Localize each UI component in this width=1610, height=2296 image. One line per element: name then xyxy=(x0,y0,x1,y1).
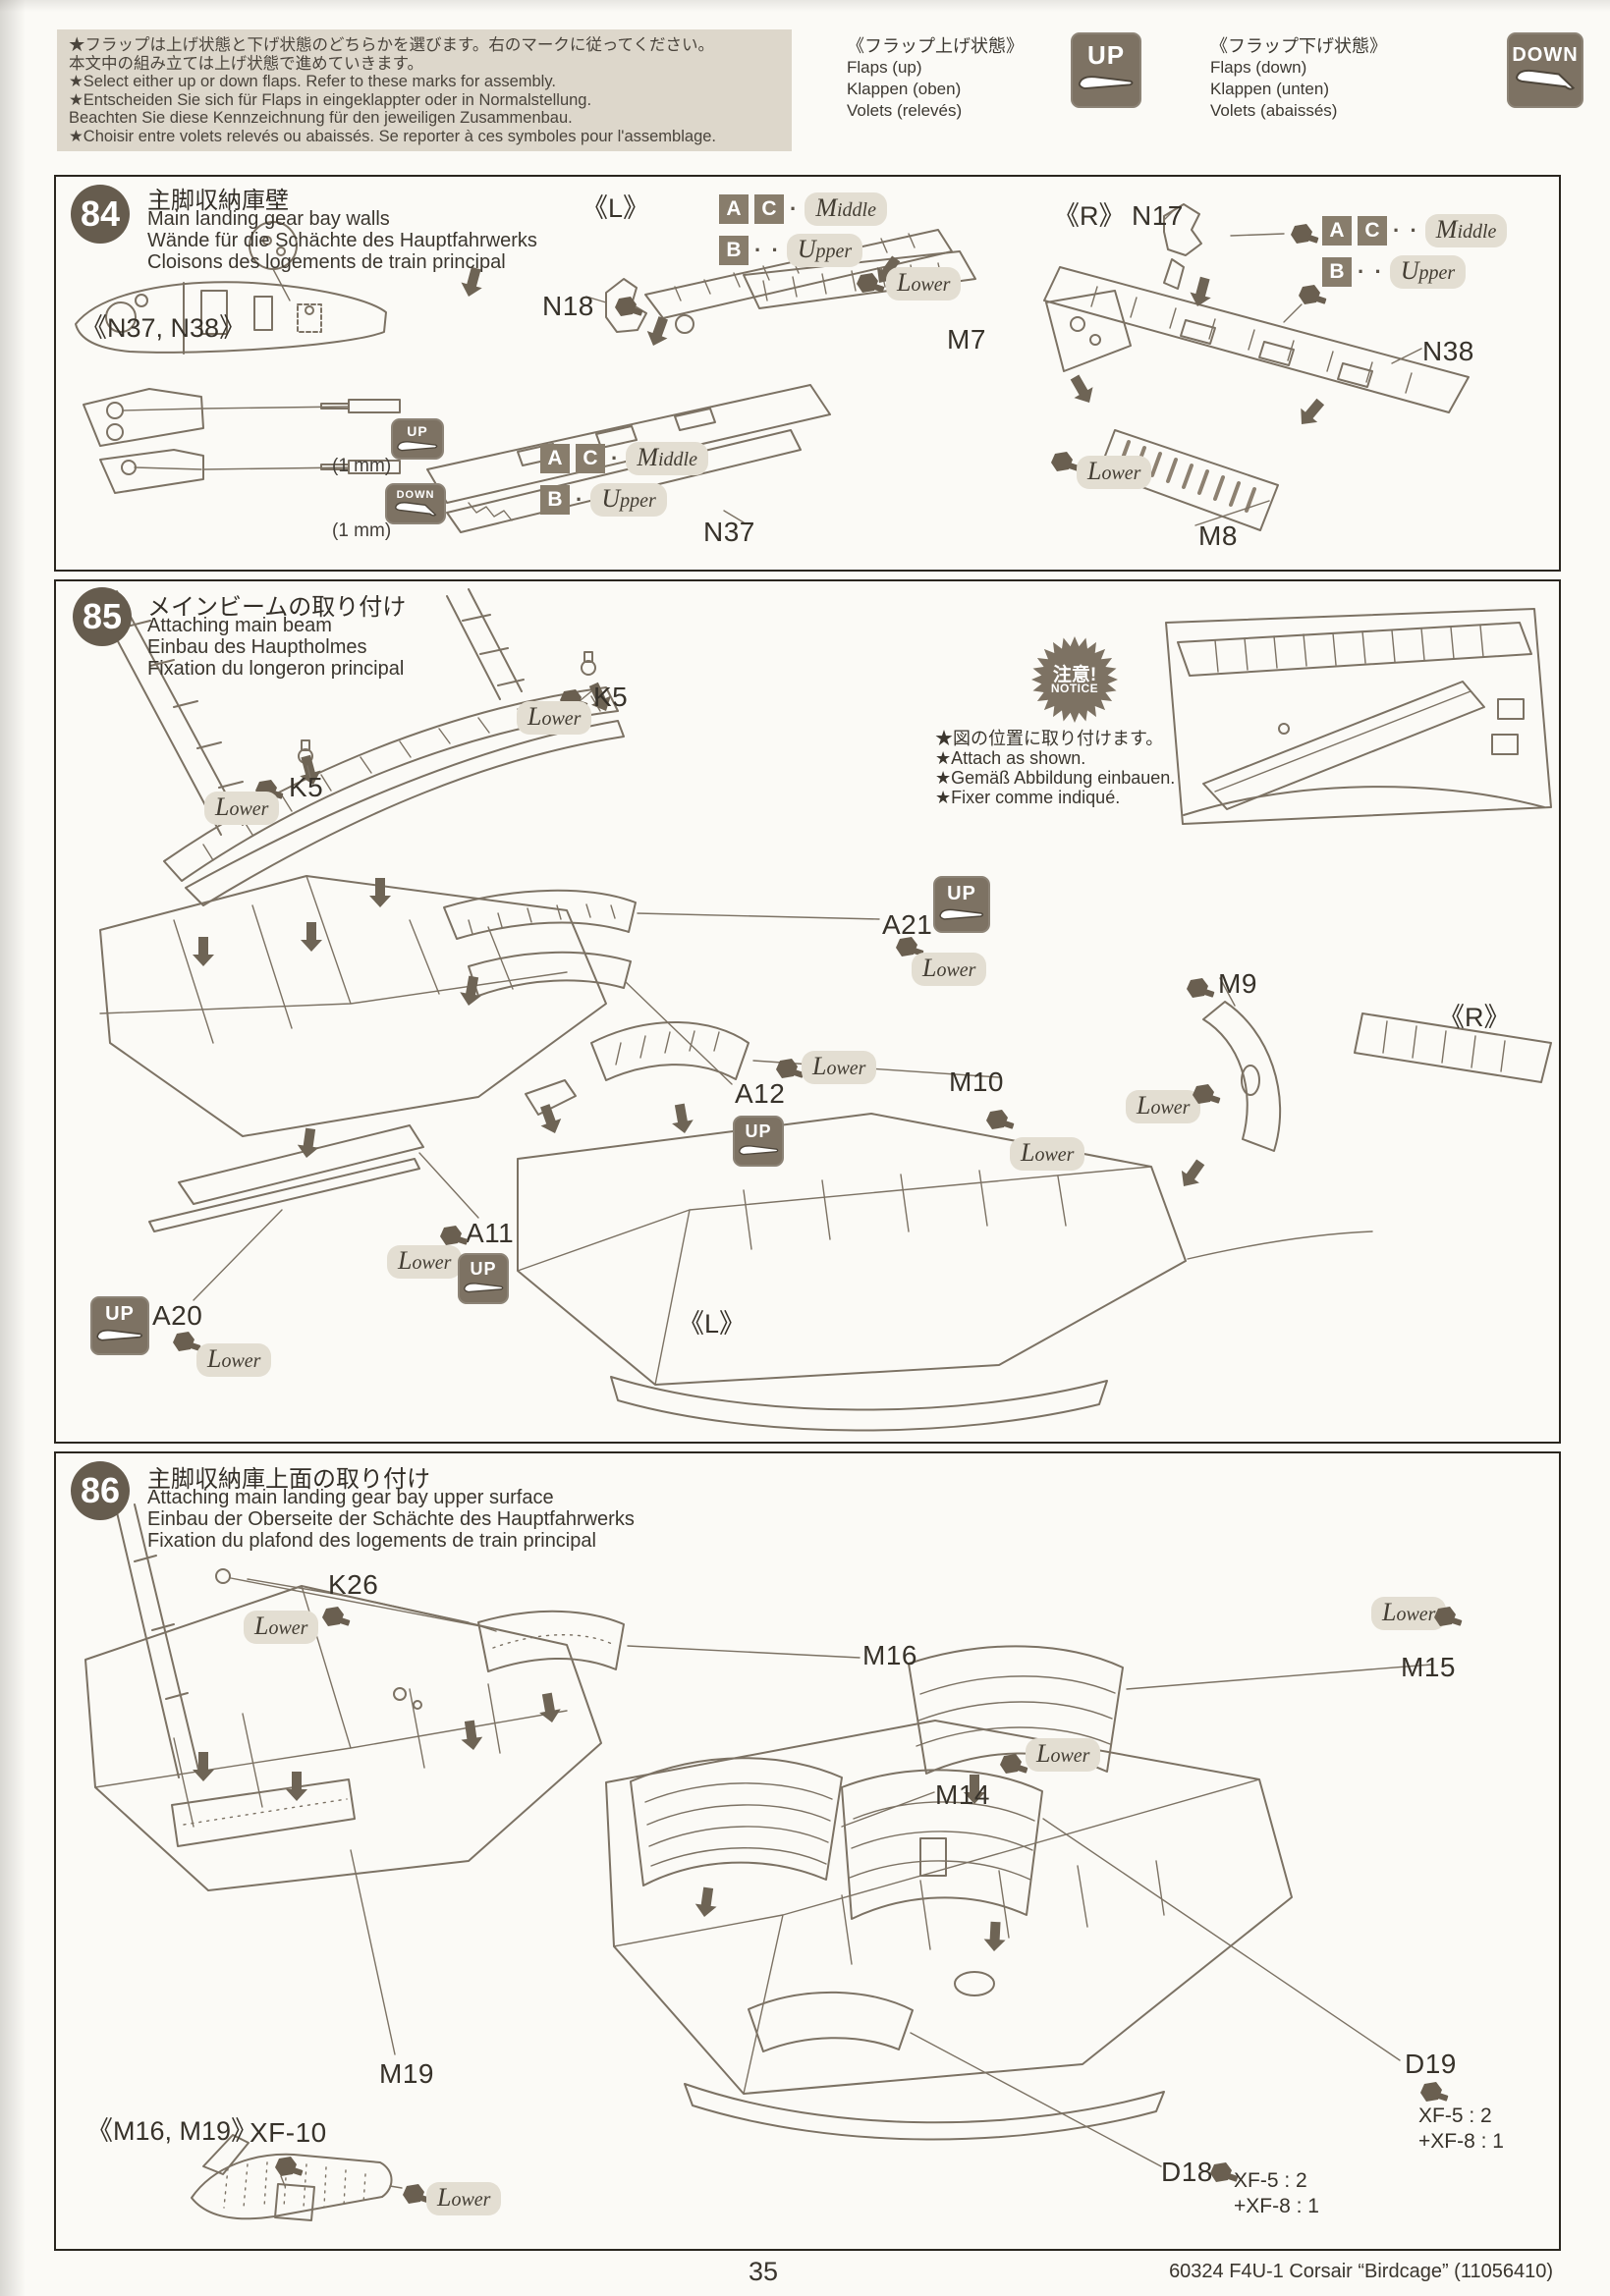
airfoil-icon xyxy=(395,438,440,455)
attach-code-row: AC·Middle xyxy=(540,442,708,475)
dots: · xyxy=(611,446,620,471)
paint-brush-icon xyxy=(982,1108,1016,1135)
attach-code-row: B·Upper xyxy=(540,483,667,517)
airfoil-icon xyxy=(94,1324,145,1347)
part-label: A11 xyxy=(466,1218,514,1249)
note-label: (1 mm) xyxy=(332,520,391,542)
part-label: M9 xyxy=(1218,968,1257,1000)
surface-pill: Lower xyxy=(196,1343,271,1377)
group-label: 《R》 xyxy=(1053,194,1126,233)
part-tree-letter: C xyxy=(576,444,605,473)
part-label: M10 xyxy=(949,1066,1004,1098)
badge-label: UP xyxy=(745,1122,771,1140)
surface-pill: Lower xyxy=(886,267,961,301)
part-label: K5 xyxy=(593,682,628,713)
paint-brush-icon xyxy=(611,295,644,322)
attach-code-row: B· ·Upper xyxy=(1322,255,1466,289)
surface-pill: Middle xyxy=(805,192,887,226)
paint-brush-icon xyxy=(1047,450,1081,477)
surface-pill: Lower xyxy=(1010,1137,1084,1171)
paint-brush-icon xyxy=(271,2155,305,2182)
paint-brush-icon xyxy=(318,1605,352,1632)
surface-pill: Lower xyxy=(387,1245,462,1279)
badge-label: UP xyxy=(470,1260,496,1278)
flap-up-badge: UP xyxy=(733,1116,784,1167)
airfoil-icon xyxy=(390,501,442,518)
flap-up-badge: UP xyxy=(458,1253,509,1304)
surface-pill: Lower xyxy=(426,2182,501,2215)
part-tree-letter: C xyxy=(754,194,784,224)
paint-brush-icon xyxy=(996,1752,1029,1779)
part-tree-letter: B xyxy=(540,485,570,515)
note-label: (1 mm) xyxy=(332,456,391,477)
badge-label: DOWN xyxy=(397,490,435,501)
part-label: XF-10 xyxy=(250,2117,327,2149)
paint-brush-icon xyxy=(1183,976,1216,1004)
surface-pill: Upper xyxy=(590,483,666,517)
dots: · xyxy=(576,487,584,513)
surface-pill: Lower xyxy=(1026,1738,1100,1772)
part-tree-letter: B xyxy=(719,236,749,265)
part-tree-letter: A xyxy=(719,194,749,224)
part-label: M14 xyxy=(935,1779,990,1811)
part-label: K5 xyxy=(289,772,323,803)
instruction-page: ★フラップは上げ状態と下げ状態のどちらかを選びます。右のマークに従ってください。… xyxy=(0,0,1610,2296)
part-label: A20 xyxy=(152,1300,202,1332)
paint-brush-icon xyxy=(1295,283,1328,310)
flap-up-badge: UP xyxy=(933,876,990,933)
paint-brush-icon xyxy=(1189,1082,1222,1110)
annotation-layer: 《L》AC·MiddleB· ·UpperN18LowerM7AC·Middle… xyxy=(0,0,1610,2296)
group-label: 《L》 xyxy=(582,187,649,225)
part-label: K26 xyxy=(328,1569,378,1601)
surface-pill: Middle xyxy=(626,442,708,475)
surface-pill: Lower xyxy=(912,953,986,986)
paint-mix-line: +XF-8 : 1 xyxy=(1234,2194,1319,2219)
flap-down-badge: DOWN xyxy=(385,483,446,524)
part-label: M19 xyxy=(379,2058,434,2090)
part-label: N18 xyxy=(542,291,594,322)
attach-code-row: AC·Middle xyxy=(719,192,887,226)
badge-label: UP xyxy=(947,884,976,903)
flap-up-badge: UP xyxy=(391,418,444,460)
group-label: 《N37, N38》 xyxy=(81,306,246,345)
paint-mix-label: XF-5 : 2+XF-8 : 1 xyxy=(1234,2168,1319,2219)
dots: · xyxy=(790,196,799,222)
paint-mix-line: XF-5 : 2 xyxy=(1234,2168,1319,2194)
surface-pill: Lower xyxy=(1077,456,1151,489)
surface-pill: Upper xyxy=(787,234,862,267)
part-label: M8 xyxy=(1198,520,1238,552)
part-label: D19 xyxy=(1405,2049,1457,2080)
part-label: M16 xyxy=(862,1640,917,1671)
airfoil-icon xyxy=(737,1140,781,1161)
group-label: 《L》 xyxy=(678,1302,746,1340)
airfoil-icon xyxy=(462,1278,506,1298)
part-label: N38 xyxy=(1422,336,1474,367)
surface-pill: Lower xyxy=(244,1611,318,1644)
part-label: M7 xyxy=(947,324,986,355)
paint-mix-line: XF-5 : 2 xyxy=(1418,2104,1504,2129)
part-tree-letter: A xyxy=(1322,216,1352,246)
surface-pill: Upper xyxy=(1390,255,1466,289)
surface-pill: Lower xyxy=(802,1051,876,1084)
badge-label: UP xyxy=(105,1304,135,1324)
group-label: 《M16, M19》 xyxy=(86,2109,257,2148)
part-label: N37 xyxy=(703,517,755,548)
part-tree-letter: A xyxy=(540,444,570,473)
surface-pill: Middle xyxy=(1425,214,1508,247)
part-label: M15 xyxy=(1401,1652,1456,1683)
surface-pill: Lower xyxy=(517,701,591,735)
part-tree-letter: C xyxy=(1358,216,1387,246)
paint-brush-icon xyxy=(1287,222,1320,249)
flap-up-badge: UP xyxy=(90,1296,149,1355)
paint-brush-icon xyxy=(1430,1605,1464,1632)
attach-code-row: AC· ·Middle xyxy=(1322,214,1507,247)
dots: · · xyxy=(1358,259,1384,285)
badge-label: UP xyxy=(407,424,427,438)
paint-mix-label: XF-5 : 2+XF-8 : 1 xyxy=(1418,2104,1504,2155)
dots: · · xyxy=(1393,218,1419,244)
airfoil-icon xyxy=(937,903,986,926)
part-label: D18 xyxy=(1161,2157,1213,2188)
group-label: 《R》 xyxy=(1438,996,1511,1034)
attach-code-row: B· ·Upper xyxy=(719,234,862,267)
paint-brush-icon xyxy=(772,1057,805,1084)
part-label: N17 xyxy=(1132,200,1184,232)
paint-mix-line: +XF-8 : 1 xyxy=(1418,2129,1504,2155)
surface-pill: Lower xyxy=(204,792,279,825)
paint-brush-icon xyxy=(853,271,886,299)
dots: · · xyxy=(754,238,781,263)
